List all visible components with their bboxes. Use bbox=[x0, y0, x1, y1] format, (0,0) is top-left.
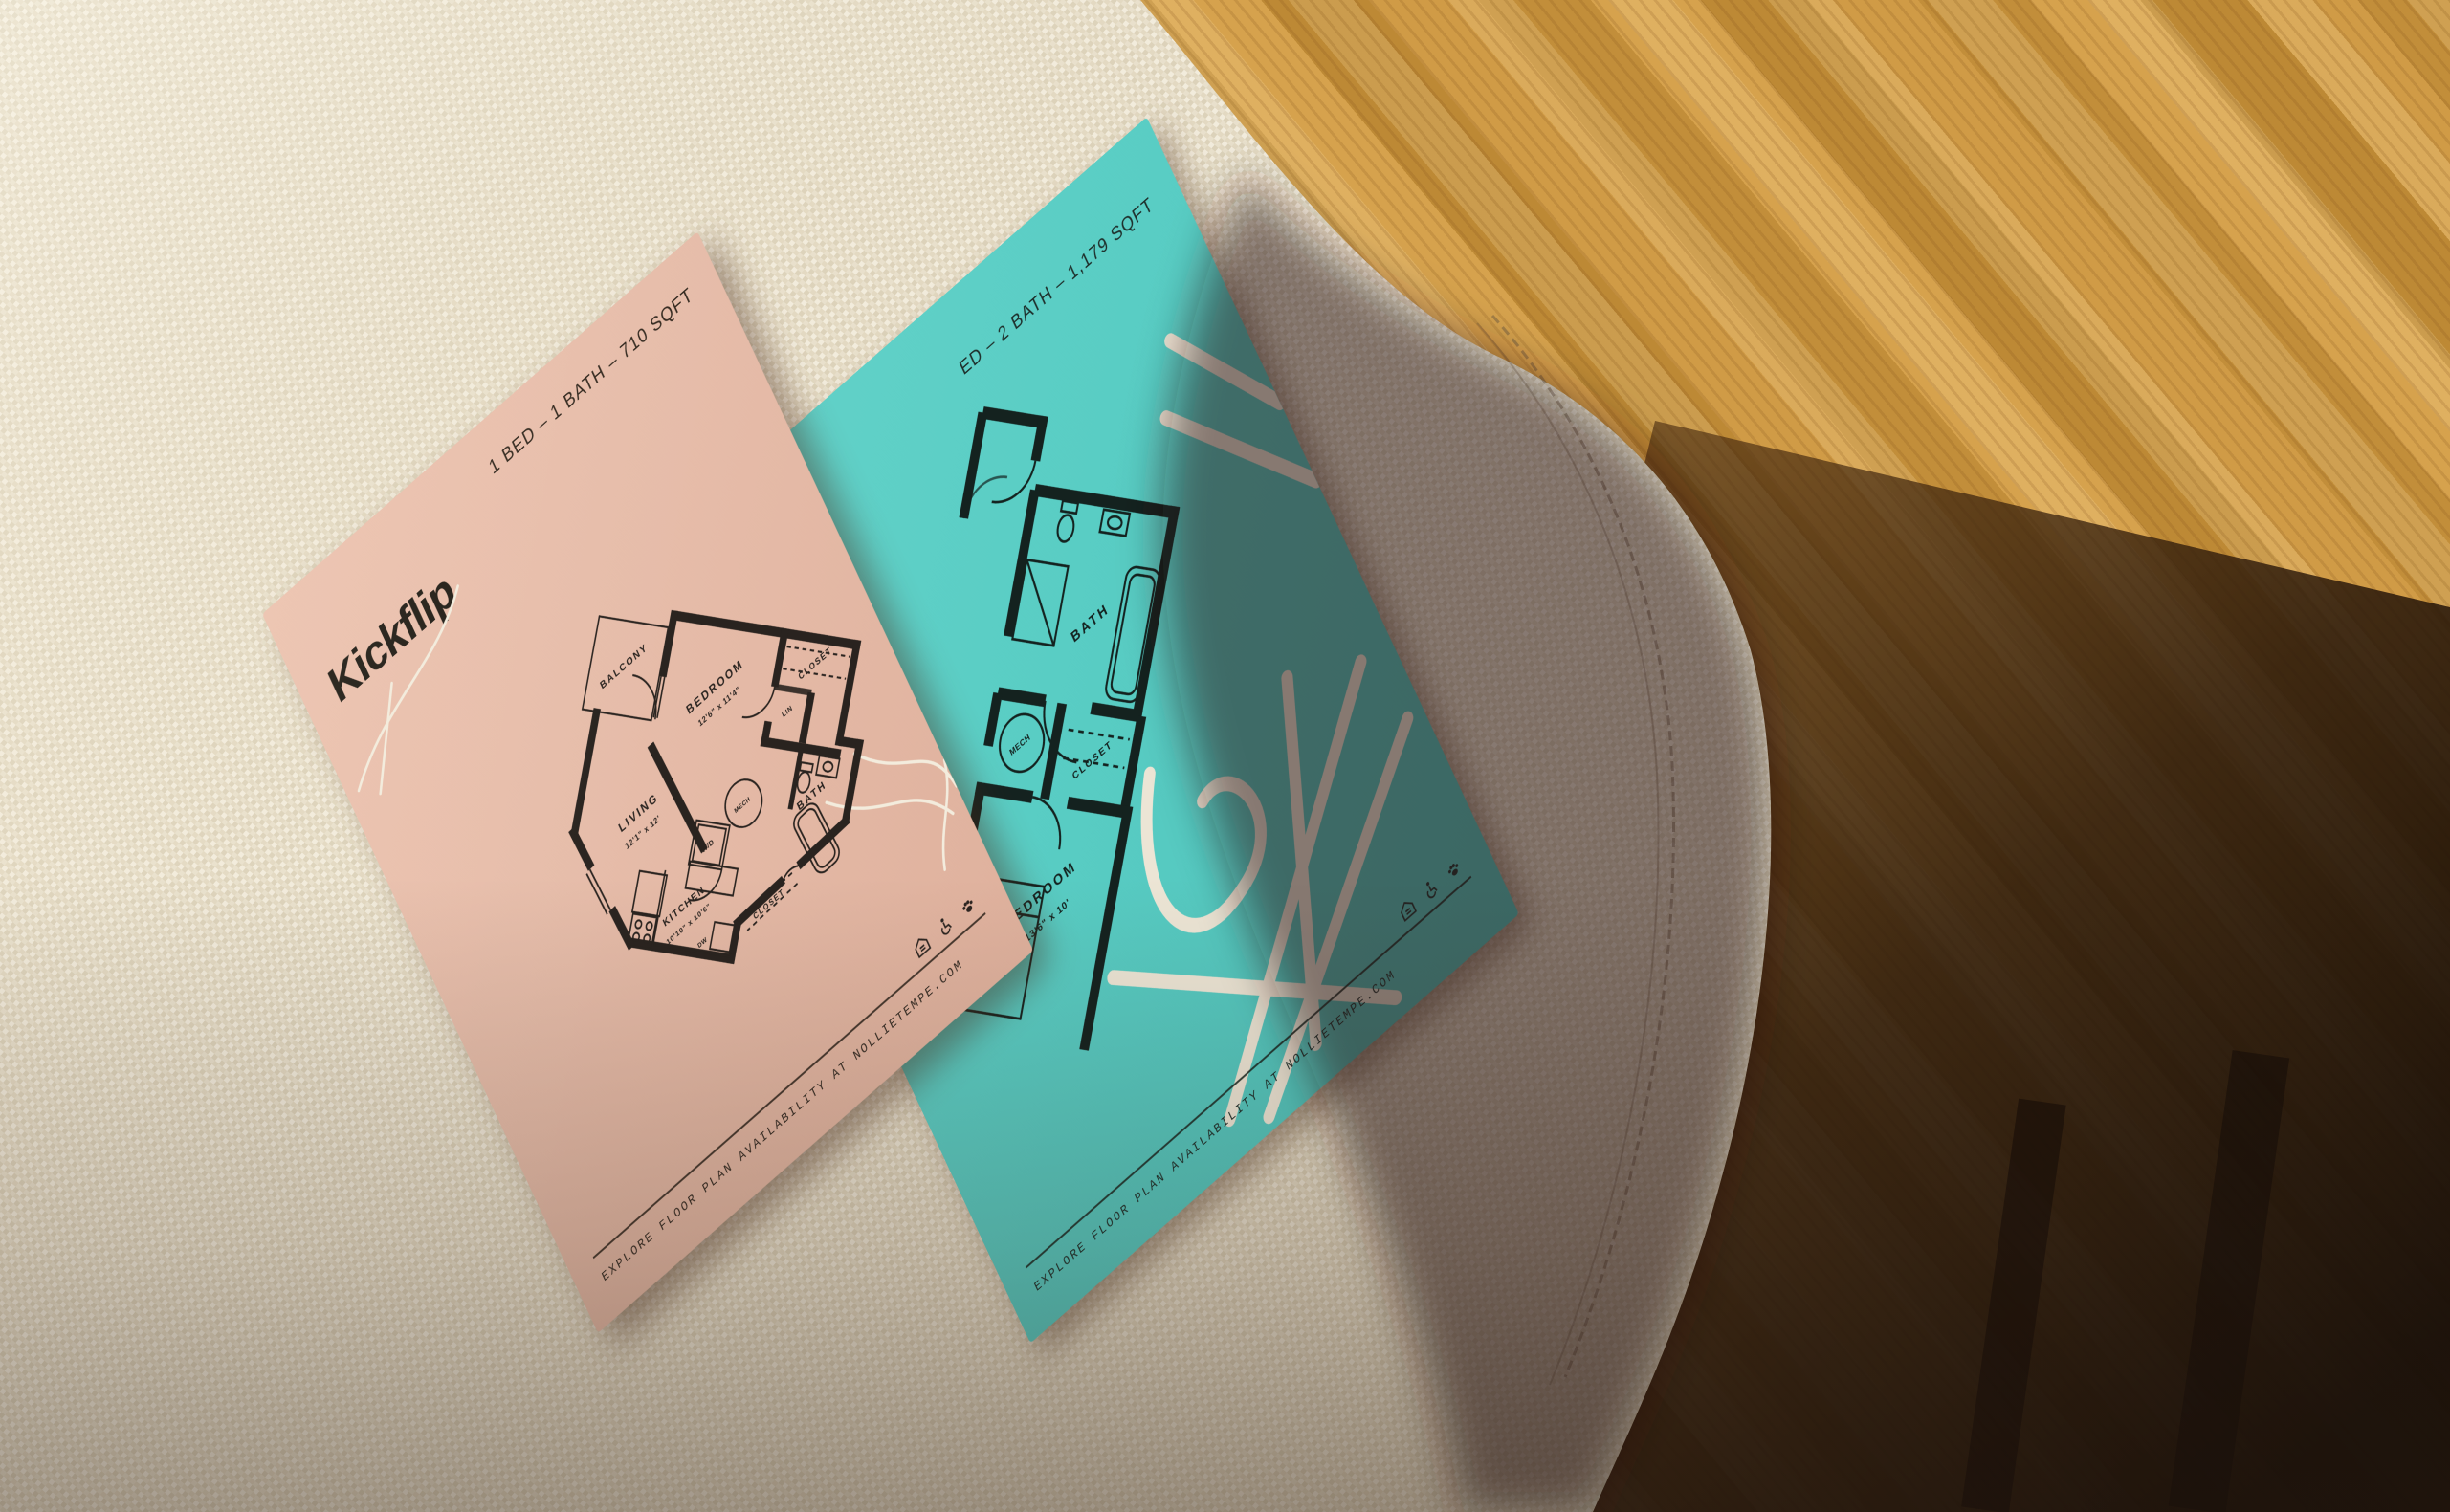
pink-room-dw: DW bbox=[697, 936, 709, 950]
pet-friendly-icon bbox=[1443, 854, 1465, 884]
pink-room-living: LIVING bbox=[616, 790, 660, 836]
accessibility-icon bbox=[934, 910, 956, 940]
equal-housing-icon bbox=[911, 931, 933, 961]
pink-plan-doors-fixtures bbox=[541, 616, 877, 975]
pink-room-balcony: BALCONY bbox=[599, 642, 650, 691]
teal-room-bath: BATH bbox=[1069, 601, 1111, 646]
pink-room-closet: CLOSET bbox=[797, 645, 833, 682]
pink-room-mech: MECH bbox=[734, 796, 752, 815]
teal-room-mech: MECH bbox=[1008, 732, 1032, 757]
accessibility-icon bbox=[1419, 874, 1441, 904]
pink-room-lin: LIN bbox=[782, 705, 794, 719]
equal-housing-icon bbox=[1396, 894, 1418, 924]
pink-room-bath: BATH bbox=[795, 778, 828, 814]
pet-friendly-icon bbox=[957, 890, 979, 920]
kickflip-logo: Kickflip bbox=[321, 562, 462, 714]
photo-scene: ED – 2 BATH – 1,179 SQFT bbox=[0, 0, 2450, 1512]
pink-floor-plan: BALCONY BEDROOM 12'6" x 11'4" CLOSET LIN… bbox=[517, 580, 900, 1039]
